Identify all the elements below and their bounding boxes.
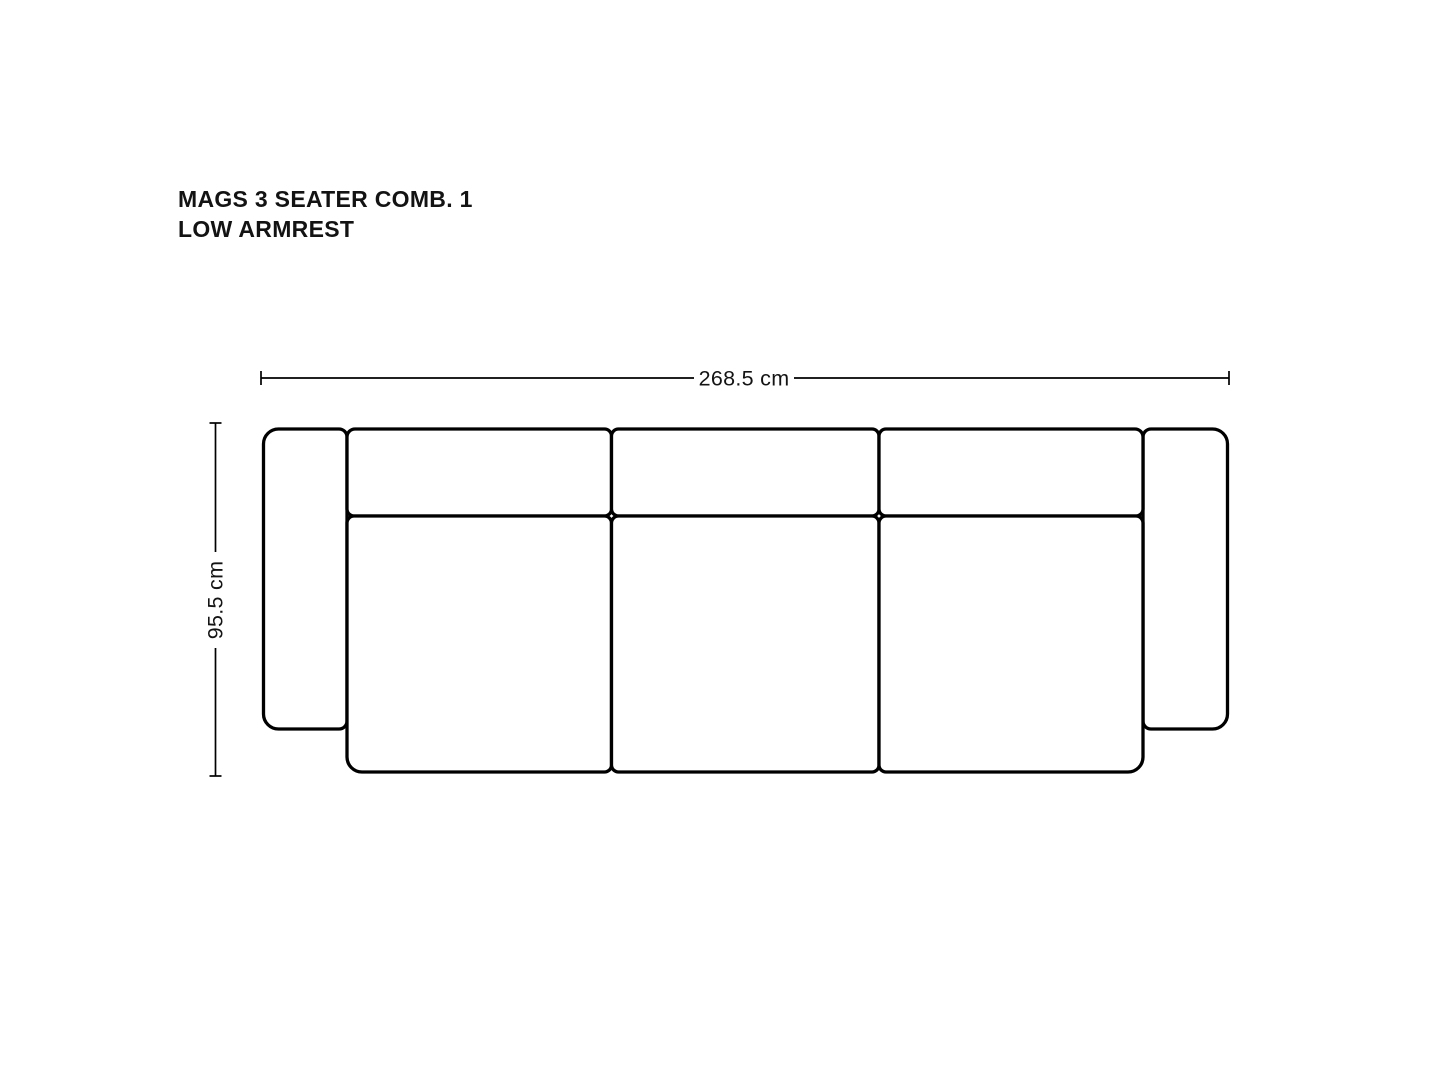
back-cushion-2	[612, 429, 880, 516]
sofa-top-view-svg: 268.5 cm 95.5 cm	[0, 0, 1445, 1087]
back-cushion-3	[879, 429, 1143, 516]
right-armrest	[1143, 429, 1228, 729]
back-cushion-1	[347, 429, 612, 516]
left-armrest	[264, 429, 348, 729]
product-dimension-diagram: MAGS 3 SEATER COMB. 1 LOW ARMREST 268.5 …	[0, 0, 1445, 1087]
seat-cushion-1	[347, 516, 612, 772]
sofa-outline	[264, 429, 1228, 772]
width-dimension-label: 268.5 cm	[699, 367, 790, 391]
seat-cushion-2	[612, 516, 880, 772]
seat-cushion-3	[879, 516, 1143, 772]
depth-dimension-label: 95.5 cm	[204, 561, 228, 640]
